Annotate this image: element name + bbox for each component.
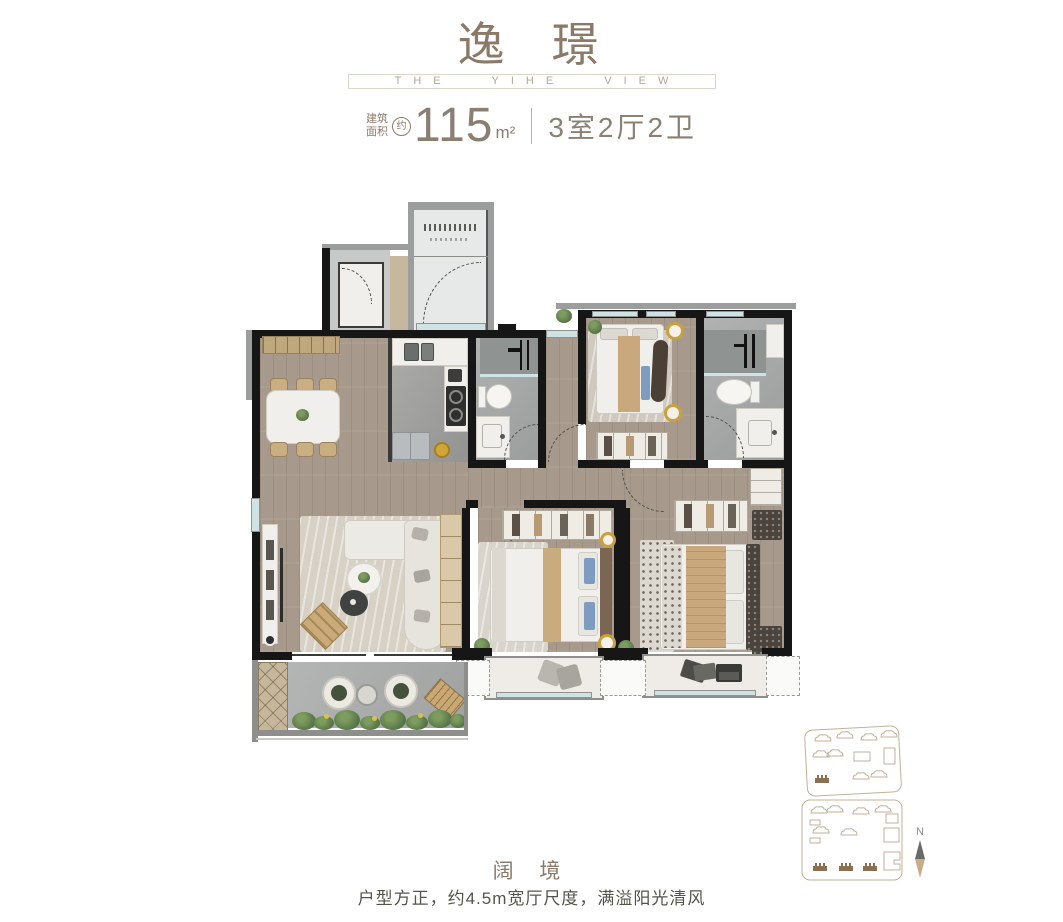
porch-wall <box>322 248 330 338</box>
flower-dot <box>324 714 329 719</box>
wall-bedroom-mid-top2 <box>524 500 626 508</box>
footer-headline: 阔 境 <box>0 855 1063 885</box>
bedside-bench <box>752 510 782 540</box>
wall-right-upper <box>784 310 792 468</box>
nightstand-top <box>666 322 684 340</box>
dining-centerpiece <box>296 409 309 421</box>
dining-chair <box>319 442 337 457</box>
table-plant <box>358 572 370 583</box>
wall-living-right <box>462 508 470 652</box>
balcony-plant <box>406 715 428 730</box>
wall-bedroom-top-bath2 <box>696 318 704 460</box>
bed-foot-runner <box>662 546 682 648</box>
balcony-plant <box>380 710 406 730</box>
coffee-machine <box>448 369 462 382</box>
bath2-faucet <box>772 430 777 435</box>
bed-pillow <box>724 600 744 644</box>
floorplan-page: 逸 璟 THE YIHE VIEW 建筑 面积 约 115 m² 3室2厅2卫 <box>0 0 1063 922</box>
bed-pillow-blue <box>584 602 595 630</box>
balcony-plant <box>292 712 316 730</box>
entry-threshold <box>546 330 578 338</box>
balcony-rail-outer <box>256 738 468 740</box>
bed-fold-tan <box>543 548 561 642</box>
tv-screen <box>280 548 283 622</box>
balcony-plant <box>334 710 360 730</box>
wall-right-lower <box>784 468 792 652</box>
wall-bedroom-top-left <box>578 318 586 424</box>
bed-pillow-blue <box>584 558 595 584</box>
bed-headboard <box>600 548 612 642</box>
chair-cushion <box>331 685 347 701</box>
balcony-wall-right <box>464 662 468 732</box>
wall-bottom <box>252 652 292 660</box>
bay-books-2 <box>693 663 717 682</box>
bath1-toilet-tank <box>478 386 486 408</box>
shower-fixture <box>527 340 529 370</box>
stove-burner <box>449 390 463 404</box>
wardrobe-clothes <box>560 514 568 536</box>
floor-speaker <box>264 634 276 646</box>
wall-band <box>578 460 586 468</box>
lobby-annotation-marks <box>424 224 476 231</box>
bed-throw-tan <box>618 336 640 412</box>
wall-bedroom-mid-top <box>466 500 478 508</box>
wardrobe-clothes <box>512 514 520 536</box>
bedside-table <box>600 532 616 548</box>
bath2-shower-glass <box>704 373 766 376</box>
bay-right-glass <box>654 690 756 696</box>
window-bedroom-top-1 <box>592 311 638 317</box>
wall-band <box>468 460 506 468</box>
shower-fixture <box>520 340 522 370</box>
stove-burner <box>449 408 463 422</box>
balcony-plant <box>360 716 380 730</box>
wall-band <box>586 460 630 468</box>
lobby-annotation-marks2 <box>430 238 470 241</box>
wardrobe-clothes <box>604 436 612 456</box>
lobby-divider <box>414 256 488 257</box>
bath1-faucet <box>500 434 505 439</box>
table-dot <box>350 599 356 605</box>
bath2-toilet-bowl <box>716 379 752 405</box>
lobby-trim-top <box>408 202 494 210</box>
bed-foot-throw <box>492 548 506 642</box>
bath1-shower <box>480 338 538 376</box>
wall-between-bedrooms <box>614 508 630 652</box>
wardrobe-clothes <box>534 514 542 536</box>
console-item <box>266 540 274 560</box>
lobby-trim-right <box>488 202 494 332</box>
plant-entry-corner <box>556 309 572 323</box>
dining-chair <box>270 442 288 457</box>
bath2-sink <box>748 420 772 446</box>
wall-bath1-left <box>468 338 476 468</box>
wardrobe-clothes <box>684 504 692 528</box>
wardrobe-clothes <box>728 504 736 528</box>
shower-fixture <box>752 334 755 368</box>
chair-cushion <box>393 683 409 699</box>
ac-platform <box>766 656 800 696</box>
bed-runner-blue <box>641 366 650 400</box>
bath1-shower-glass <box>480 374 538 377</box>
shower-head <box>734 344 746 347</box>
wall-bath1-right <box>538 338 546 468</box>
bed-pillow <box>724 550 744 594</box>
wardrobe-clothes <box>586 514 594 536</box>
window-bath2 <box>706 311 744 317</box>
yellow-pot <box>434 442 450 458</box>
laptop-keyboard <box>719 672 739 680</box>
trim-top-right <box>556 303 796 309</box>
flower-dot <box>418 713 423 718</box>
balcony-rail <box>256 730 468 736</box>
bath1-sink <box>482 424 502 448</box>
balcony-table <box>356 684 378 706</box>
wall-bottom <box>598 648 648 660</box>
flower-dot <box>372 716 377 721</box>
console-item <box>266 570 274 590</box>
ac-platform <box>600 660 646 696</box>
kitchen-sink <box>404 343 419 361</box>
plant-bedroom-top <box>588 320 602 334</box>
bath2-shower <box>704 330 766 376</box>
shower-head <box>508 348 520 352</box>
balcony-plant <box>428 710 452 728</box>
window-living-left <box>251 498 260 532</box>
compass-north-label: N <box>908 826 932 838</box>
console-item <box>266 600 274 620</box>
window-bedroom-top-2 <box>646 311 676 317</box>
kitchen-sink-2 <box>421 343 434 361</box>
bay-mid-glass <box>496 692 592 698</box>
wall-band <box>664 460 708 468</box>
fridge <box>392 432 430 460</box>
footer-description: 户型方正，约4.5m宽厅尺度，满溢阳光清风 <box>0 884 1063 909</box>
dining-chair <box>296 442 314 457</box>
wall-band <box>538 460 546 468</box>
wall-band <box>742 460 784 468</box>
dining-sideboard <box>262 336 340 354</box>
wardrobe-clothes <box>648 436 656 456</box>
wardrobe-clothes <box>706 504 714 528</box>
bath1-toilet-bowl <box>486 384 512 409</box>
bedroom-right-closet <box>750 468 782 506</box>
bed-blanket-tan <box>686 546 726 648</box>
bath2-niche <box>766 324 784 358</box>
slider-notch <box>366 652 374 657</box>
fridge-divider <box>410 433 411 459</box>
nightstand-bottom <box>664 404 682 422</box>
shower-fixture <box>744 334 747 368</box>
sofa-pillow <box>413 609 431 623</box>
balcony-hatch-strip <box>258 662 288 732</box>
wardrobe-clothes <box>626 436 634 456</box>
living-shelf-unit <box>440 514 462 648</box>
